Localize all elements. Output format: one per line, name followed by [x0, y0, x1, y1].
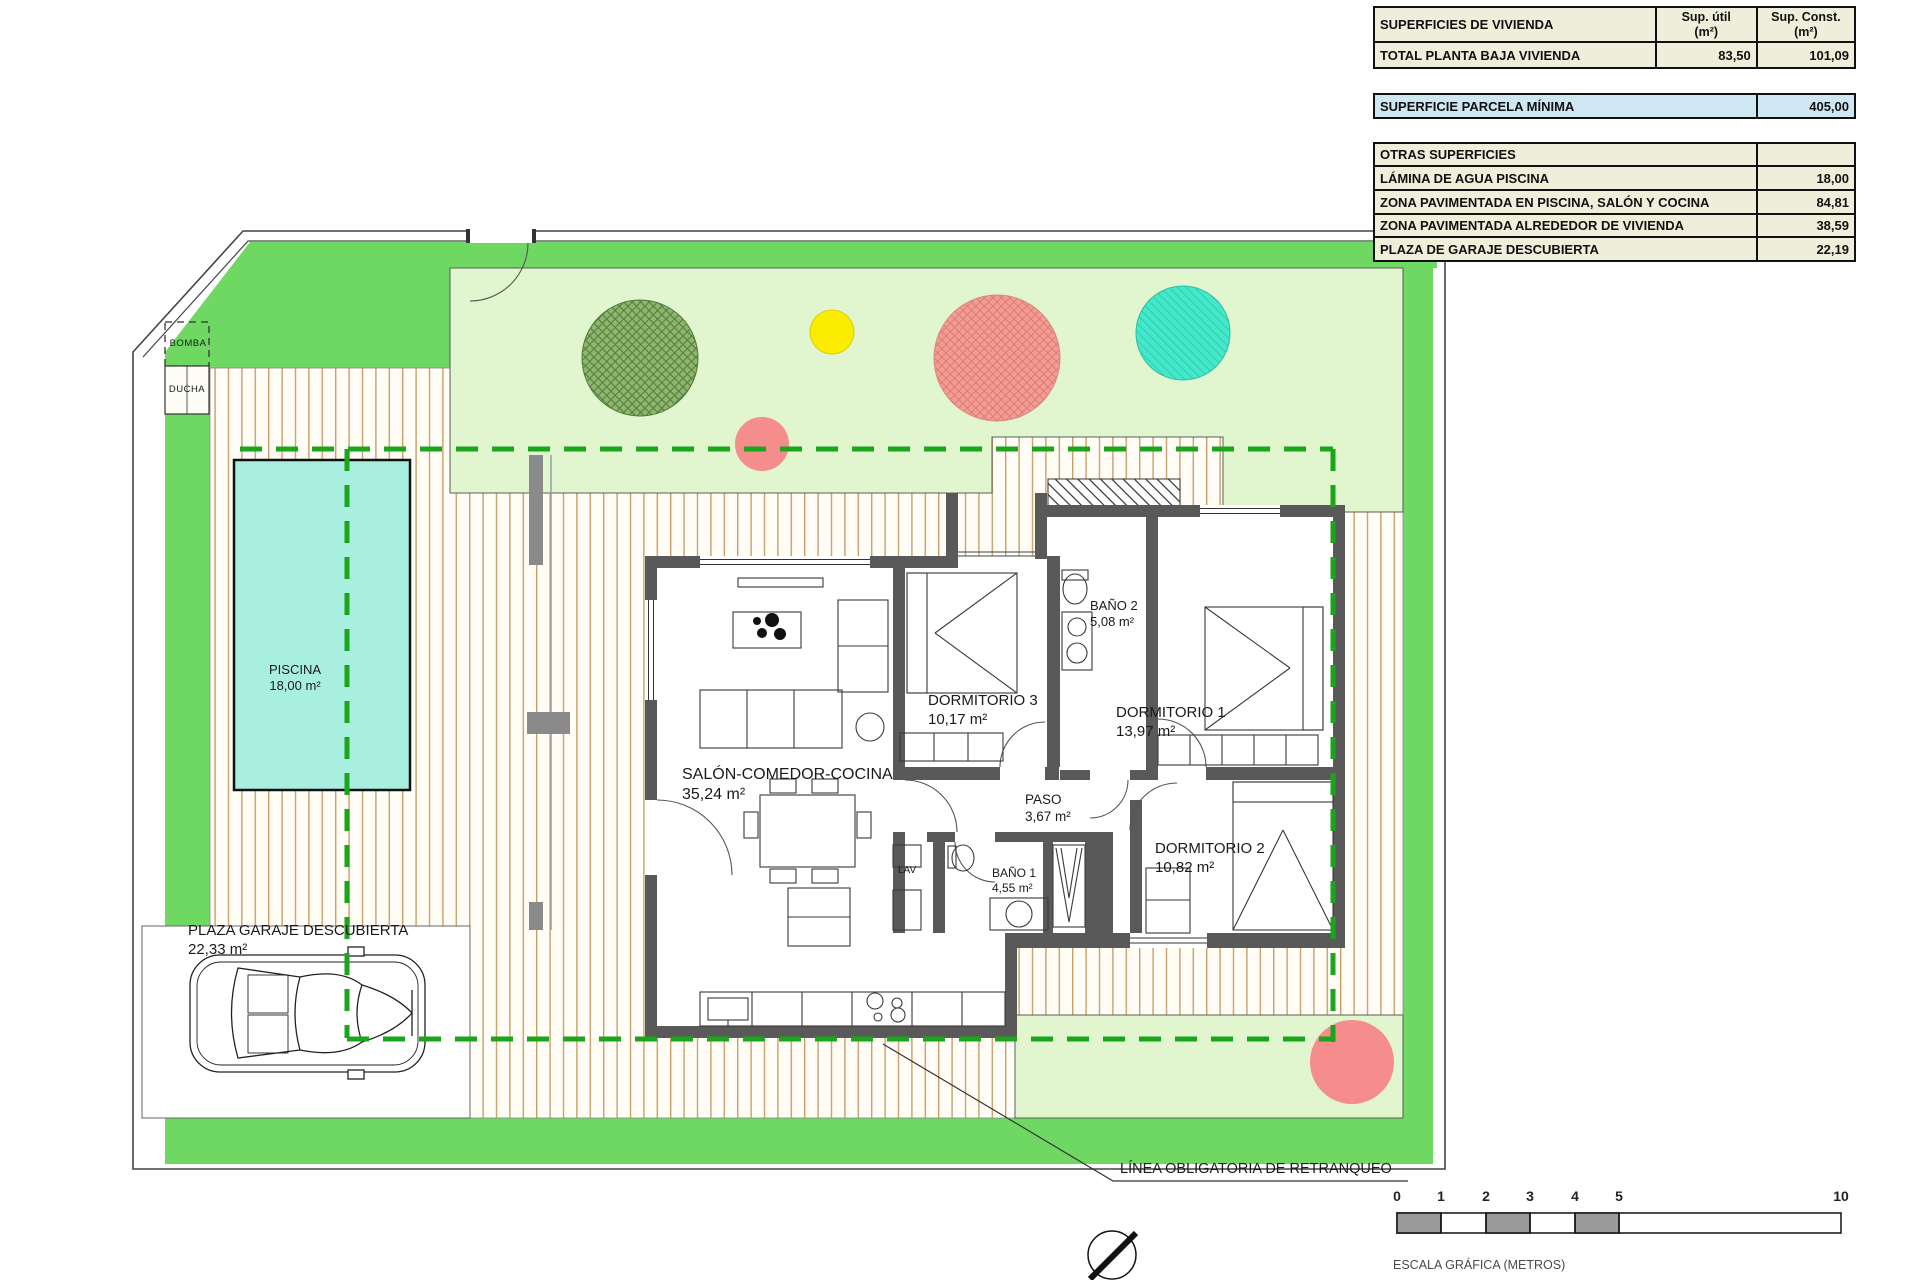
label-banyo1: BAÑO 1 4,55 m² [992, 866, 1036, 896]
table-row-parcela-minima: SUPERFICIE PARCELA MÍNIMA 405,00 [1373, 93, 1856, 119]
table-row-zona-piscina: ZONA PAVIMENTADA EN PISCINA, SALÓN Y COC… [1373, 189, 1856, 215]
scale-tick-1: 1 [1437, 1188, 1445, 1204]
label-escala: ESCALA GRÁFICA (METROS) [1393, 1258, 1565, 1274]
table-row-zona-vivienda: ZONA PAVIMENTADA ALREDEDOR DE VIVIENDA 3… [1373, 213, 1856, 238]
compass-icon [1088, 1231, 1136, 1279]
table-header-util: Sup. útil (m²) [1655, 8, 1756, 41]
pool [234, 460, 410, 790]
scale-tick-4: 4 [1571, 1188, 1579, 1204]
tree-pink-small [735, 417, 789, 471]
garden-gate [466, 229, 536, 243]
scale-tick-10: 10 [1833, 1188, 1849, 1204]
label-banyo2: BAÑO 2 5,08 m² [1090, 598, 1138, 631]
scale-tick-0: 0 [1393, 1188, 1401, 1204]
label-retranqueo: LÍNEA OBLIGATORIA DE RETRANQUEO [1120, 1160, 1392, 1178]
car [190, 947, 425, 1079]
label-dormitorio1: DORMITORIO 1 13,97 m² [1116, 704, 1226, 742]
label-bomba: BOMBA [168, 338, 208, 350]
table-header-row: SUPERFICIES DE VIVIENDA Sup. útil (m²) S… [1373, 6, 1856, 43]
entrance-pergola-hatch [1048, 479, 1180, 506]
label-dormitorio2: DORMITORIO 2 10,82 m² [1155, 840, 1265, 878]
table-header-const: Sup. Const. (m²) [1756, 8, 1854, 41]
label-dormitorio3: DORMITORIO 3 10,17 m² [928, 692, 1038, 730]
tree-pink-large [934, 295, 1060, 421]
table-row-plaza-garaje: PLAZA DE GARAJE DESCUBIERTA 22,19 [1373, 236, 1856, 262]
label-garaje: PLAZA GARAJE DESCUBIERTA 22,33 m² [188, 922, 408, 960]
table-row-lamina: LÁMINA DE AGUA PISCINA 18,00 [1373, 165, 1856, 191]
label-lav: LAV [898, 865, 916, 878]
tree-yellow [810, 310, 854, 354]
surfaces-table: SUPERFICIES DE VIVIENDA Sup. útil (m²) S… [1373, 6, 1856, 262]
table-row-total: TOTAL PLANTA BAJA VIVIENDA 83,50 101,09 [1373, 41, 1856, 69]
label-piscina: PISCINA 18,00 m² [250, 662, 340, 695]
tree-green [582, 300, 698, 416]
label-salon: SALÓN-COMEDOR-COCINA 35,24 m² [682, 765, 893, 805]
tree-pink-bottom [1310, 1020, 1394, 1104]
table-row-otras: OTRAS SUPERFICIES [1373, 142, 1856, 167]
scale-bar [1397, 1213, 1841, 1233]
scale-tick-3: 3 [1526, 1188, 1534, 1204]
label-ducha: DUCHA [166, 384, 208, 396]
tree-teal [1136, 286, 1230, 380]
scale-tick-5: 5 [1615, 1188, 1623, 1204]
site-plan-page: PISCINA 18,00 m² SALÓN-COMEDOR-COCINA 35… [0, 0, 1920, 1280]
label-paso: PASO 3,67 m² [1025, 792, 1071, 826]
scale-tick-2: 2 [1482, 1188, 1490, 1204]
table-header-main: SUPERFICIES DE VIVIENDA [1375, 8, 1655, 41]
